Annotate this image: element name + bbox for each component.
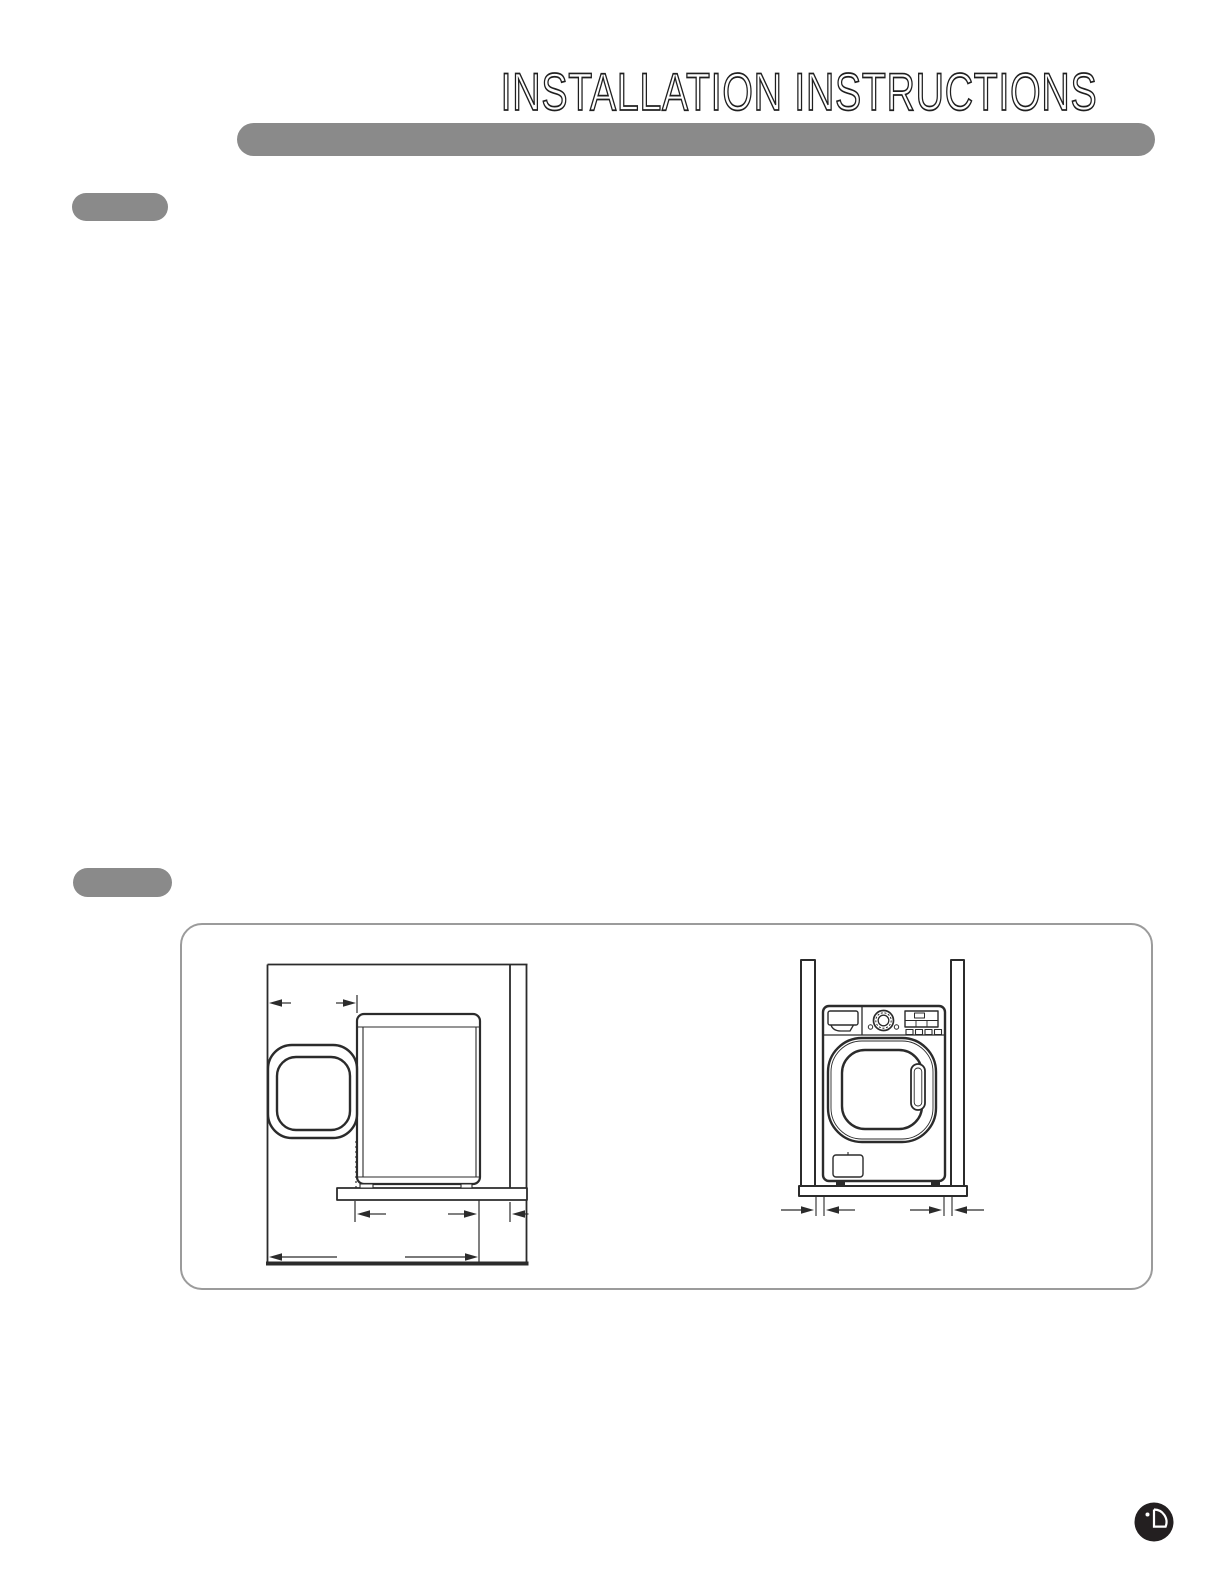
side-view-diagram [266, 965, 529, 1266]
foot-right [931, 1181, 940, 1186]
dimension-total [269, 1253, 478, 1261]
open-door [268, 1045, 357, 1138]
foot-left [836, 1181, 845, 1186]
manual-page: INSTALLATION INSTRUCTIONS [0, 0, 1224, 1584]
door-front [828, 1038, 936, 1142]
door-handle [911, 1064, 925, 1110]
lg-logo [1132, 1500, 1176, 1544]
dryer-side-body [356, 1014, 480, 1188]
platform [337, 1188, 527, 1200]
dimension-door-clearance [269, 995, 357, 1013]
front-view-diagram [781, 960, 984, 1216]
clearance-diagrams [0, 0, 1224, 1584]
service-panel [833, 1152, 863, 1177]
dimension-side-gaps [781, 1196, 984, 1216]
dimension-depth-and-rear-gap [355, 1200, 529, 1263]
